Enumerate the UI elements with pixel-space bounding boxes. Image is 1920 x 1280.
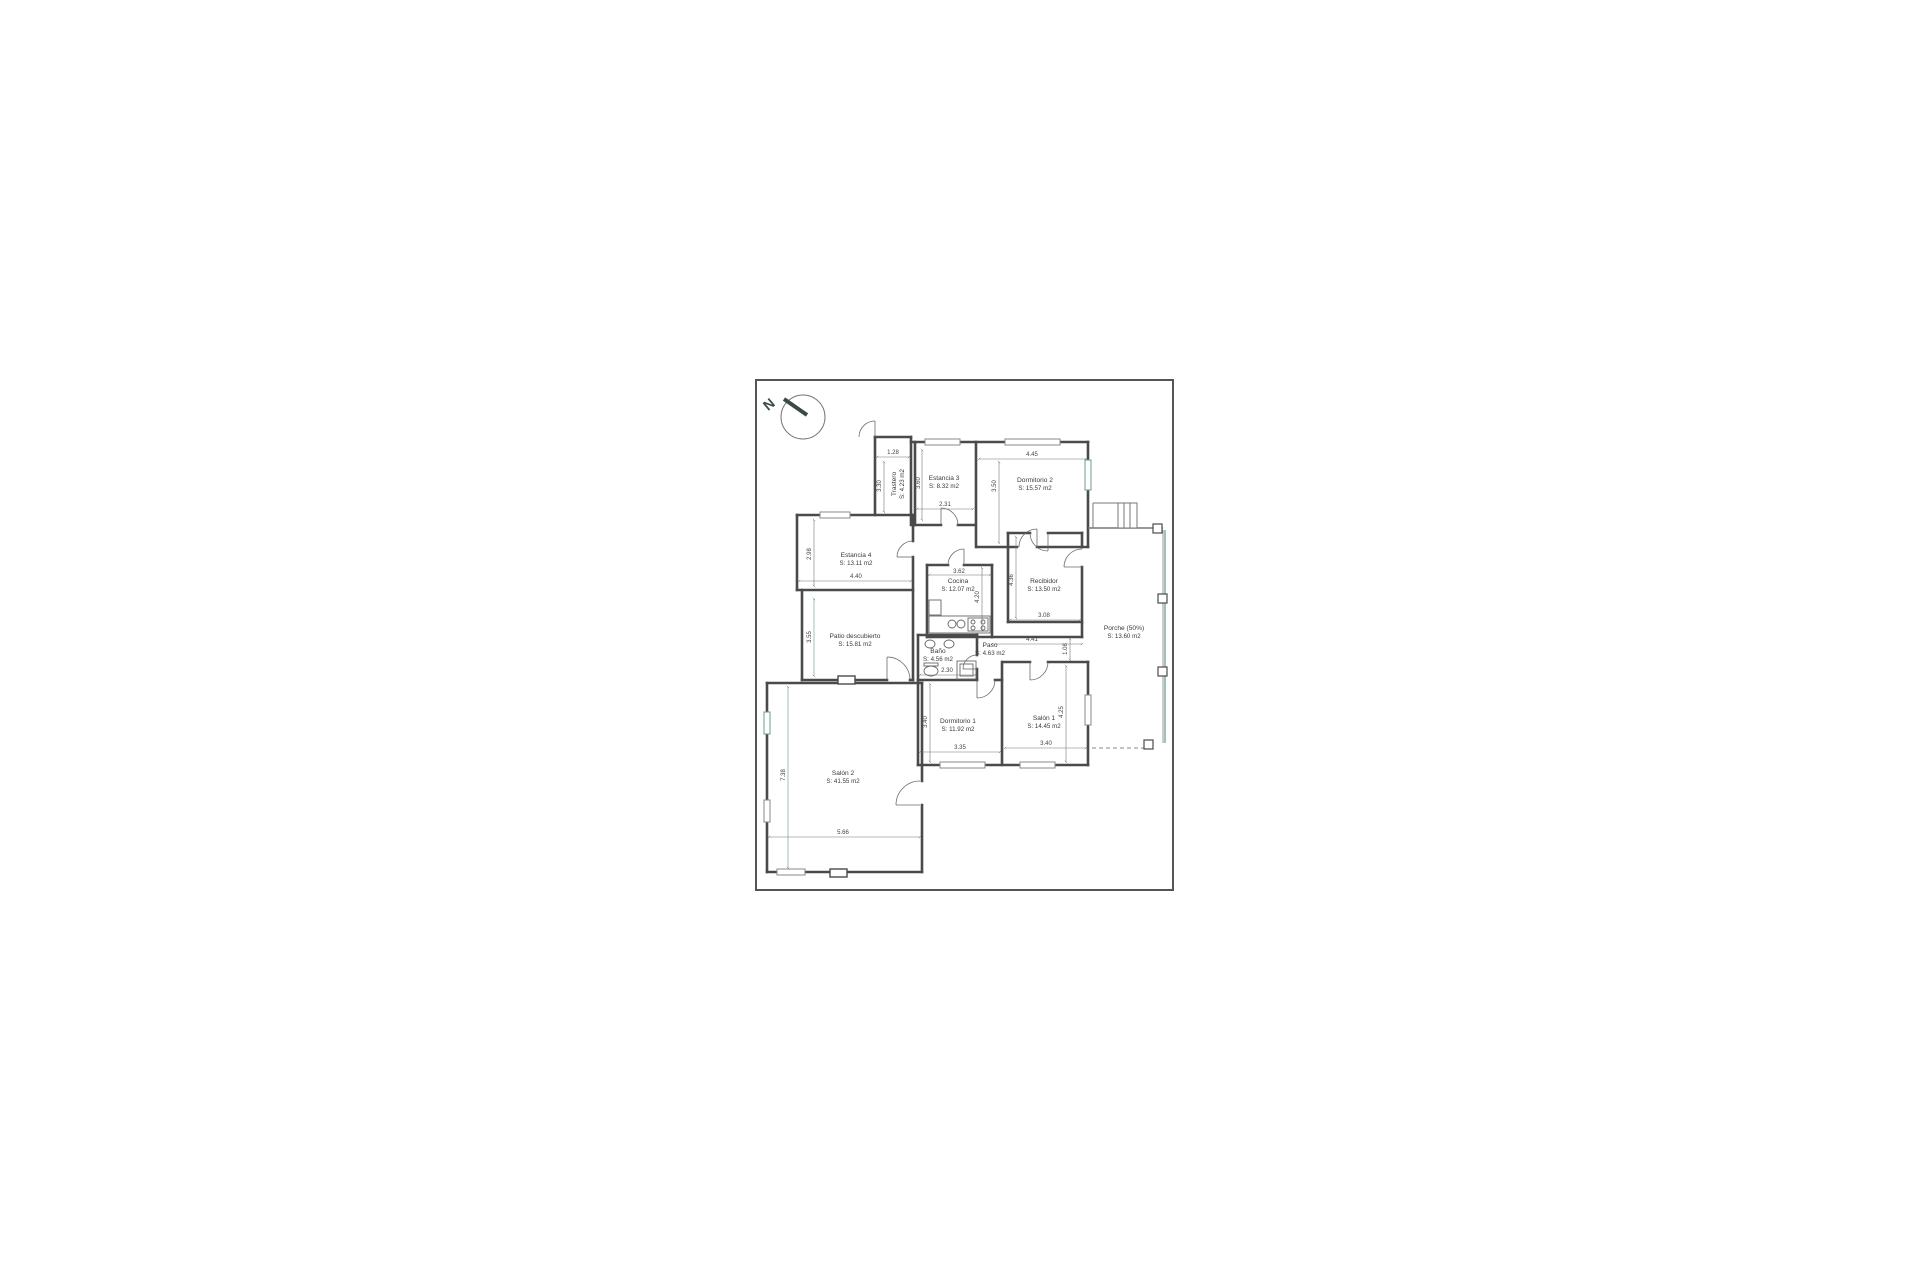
dim-cocina-h: 4.20 [975,591,981,603]
dim-estancia4-w: 4.40 [850,574,862,580]
north-label: N [760,395,778,414]
room-area-recibidor: S: 13.50 m2 [1027,586,1061,593]
walls [767,437,1088,872]
room-label-dormitorio2: Dormitorio 2 [1017,477,1053,484]
kitchen-fixtures [929,600,990,633]
dim-dormitorio1-h: 3.40 [923,716,929,728]
room-area-salon2: S: 41.55 m2 [826,778,860,785]
room-label-estancia3: Estancia 3 [929,475,960,482]
dim-dormitorio2-h: 3.50 [992,480,998,492]
dim-dormitorio1-w: 3.35 [954,745,966,751]
room-area-estancia3: S: 8.32 m2 [929,483,959,490]
dim-trastero-w: 1.28 [887,450,899,456]
dim-patio-h: 3.55 [807,631,813,643]
room-label-bano: Baño [930,648,946,655]
room-label-salon2: Salón 2 [832,770,855,777]
room-area-paso: S: 4.63 m2 [975,650,1005,657]
porch-steps [1093,503,1137,528]
north-indicator-icon: N [760,395,825,439]
room-area-cocina: S: 12.07 m2 [941,586,975,593]
room-label-porche: Porche (50%) [1104,625,1144,632]
dim-salon1-w: 3.40 [1040,741,1052,747]
room-label-patio: Patio descubierto [830,633,881,640]
floor-plan: N [0,0,1920,1280]
room-area-dormitorio1: S: 11.92 m2 [942,726,975,733]
room-area-bano: S: 4.56 m2 [923,656,953,663]
room-area-salon1: S: 14.45 m2 [1027,723,1061,730]
room-label-trastero: Trastero [891,472,898,497]
room-area-estancia4: S: 13.11 m2 [840,560,873,567]
dim-recibidor-w: 3.08 [1038,613,1050,619]
scanned-floor-plan-page: N [0,0,1920,1280]
dim-recibidor-h: 4.36 [1009,574,1015,586]
room-area-trastero: S: 4.23 m2 [899,468,906,498]
dim-trastero-h: 3.30 [877,480,883,492]
dim-salon2-h: 7.38 [781,769,787,781]
dim-paso-h: 1.08 [1063,643,1069,655]
room-label-estancia4: Estancia 4 [841,552,872,559]
dim-estancia3-h: 3.60 [916,477,922,489]
porch-pillars [1144,524,1167,749]
dim-salon1-h: 4.25 [1059,706,1065,718]
dim-bano-w: 2.30 [941,668,953,674]
dim-salon2-w: 5.66 [837,830,849,836]
room-label-cocina: Cocina [948,578,969,585]
dim-estancia4-h: 2.98 [807,548,813,560]
dim-paso-w: 4.41 [1026,637,1038,643]
room-area-patio: S: 15.81 m2 [838,641,872,648]
dim-estancia3-w: 2.31 [939,502,951,508]
room-label-salon1: Salón 1 [1033,715,1056,722]
room-area-dormitorio2: S: 15.57 m2 [1018,485,1052,492]
room-label-recibidor: Recibidor [1030,578,1059,585]
room-area-porche: S: 13.60 m2 [1107,633,1141,640]
dim-cocina-w: 3.62 [953,569,965,575]
room-label-paso: Paso [982,642,997,649]
room-label-dormitorio1: Dormitorio 1 [940,718,976,725]
dim-dormitorio2-w: 4.45 [1026,452,1038,458]
